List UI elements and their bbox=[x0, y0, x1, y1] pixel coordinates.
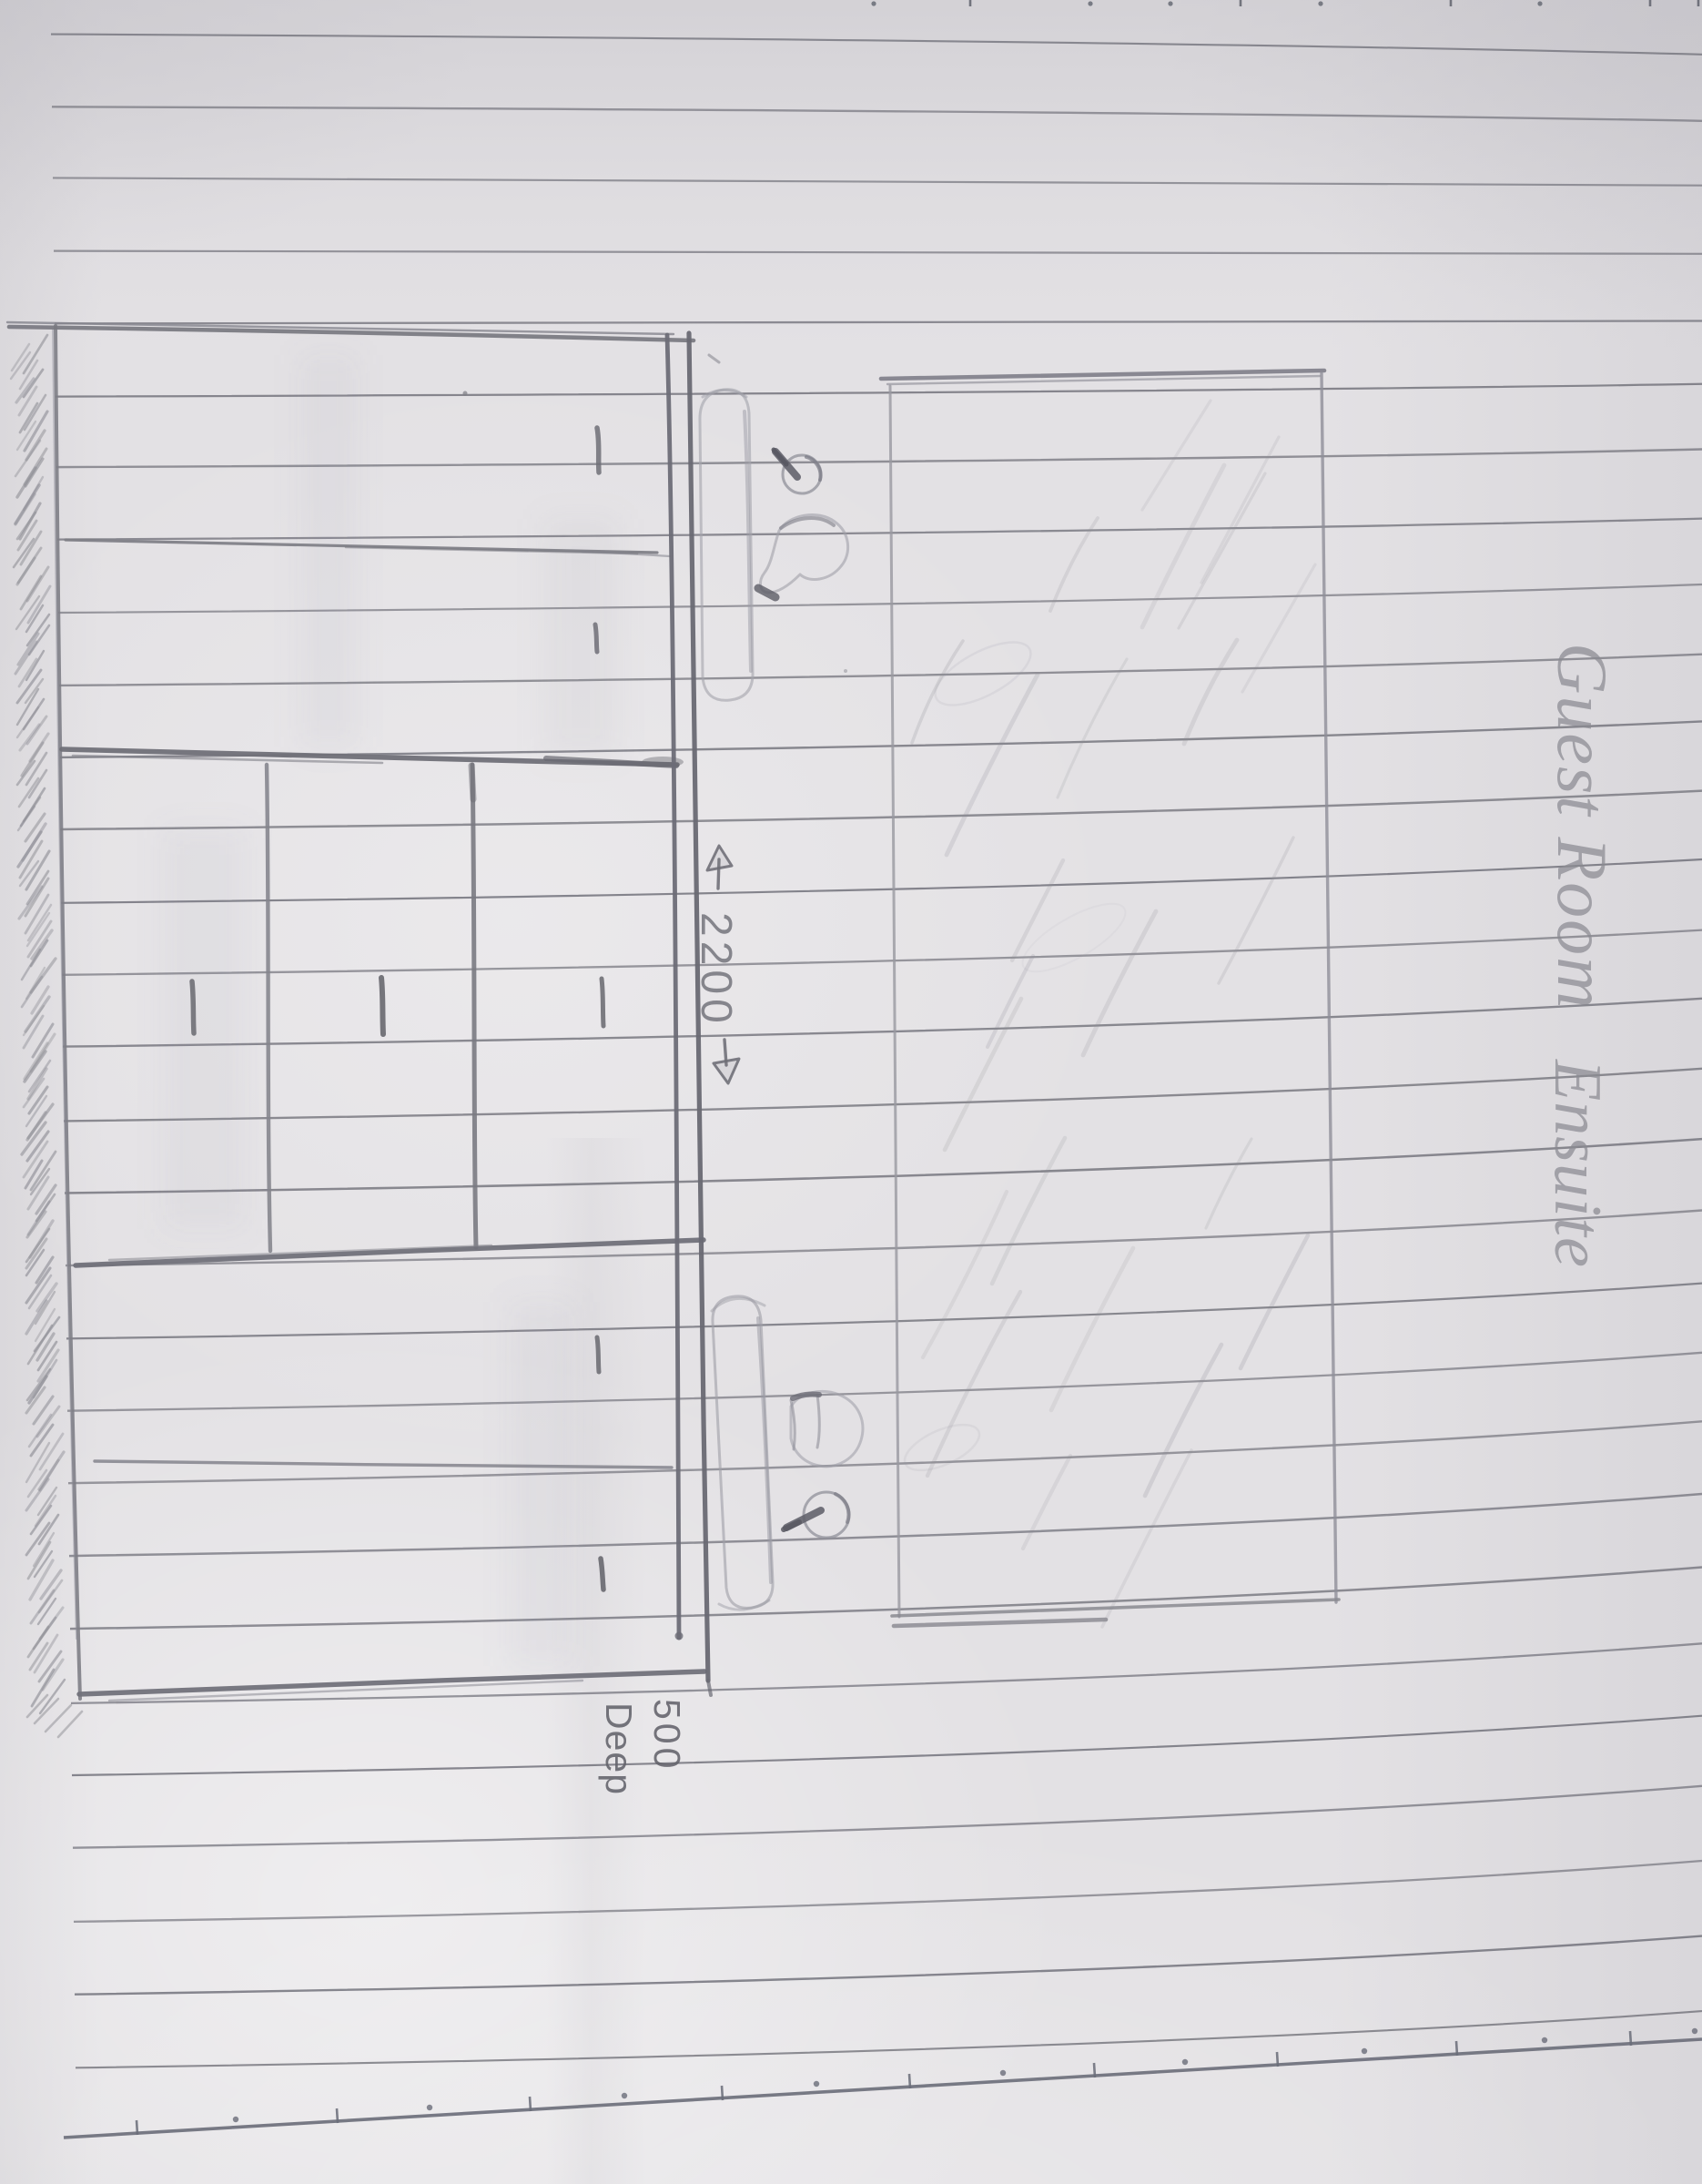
svg-text:Ensuite: Ensuite bbox=[1540, 1059, 1615, 1268]
svg-text:500: 500 bbox=[646, 1699, 688, 1772]
svg-text:Deep: Deep bbox=[598, 1702, 640, 1795]
svg-text:2200: 2200 bbox=[692, 912, 740, 1028]
svg-text:Guest Room: Guest Room bbox=[1543, 643, 1622, 1010]
